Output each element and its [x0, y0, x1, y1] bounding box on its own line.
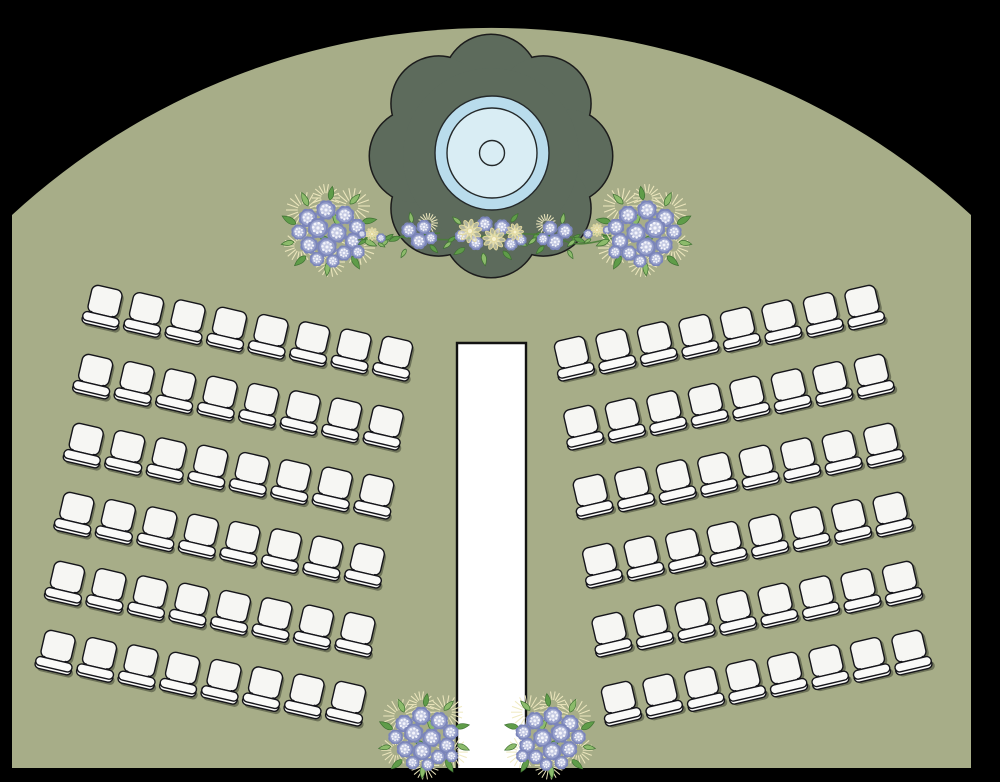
- floor-plan-canvas: [0, 0, 1000, 782]
- aisle-runner[interactable]: [457, 343, 526, 768]
- stage-circle-center: [480, 141, 505, 166]
- ceremony-floor-plan: [0, 0, 1000, 782]
